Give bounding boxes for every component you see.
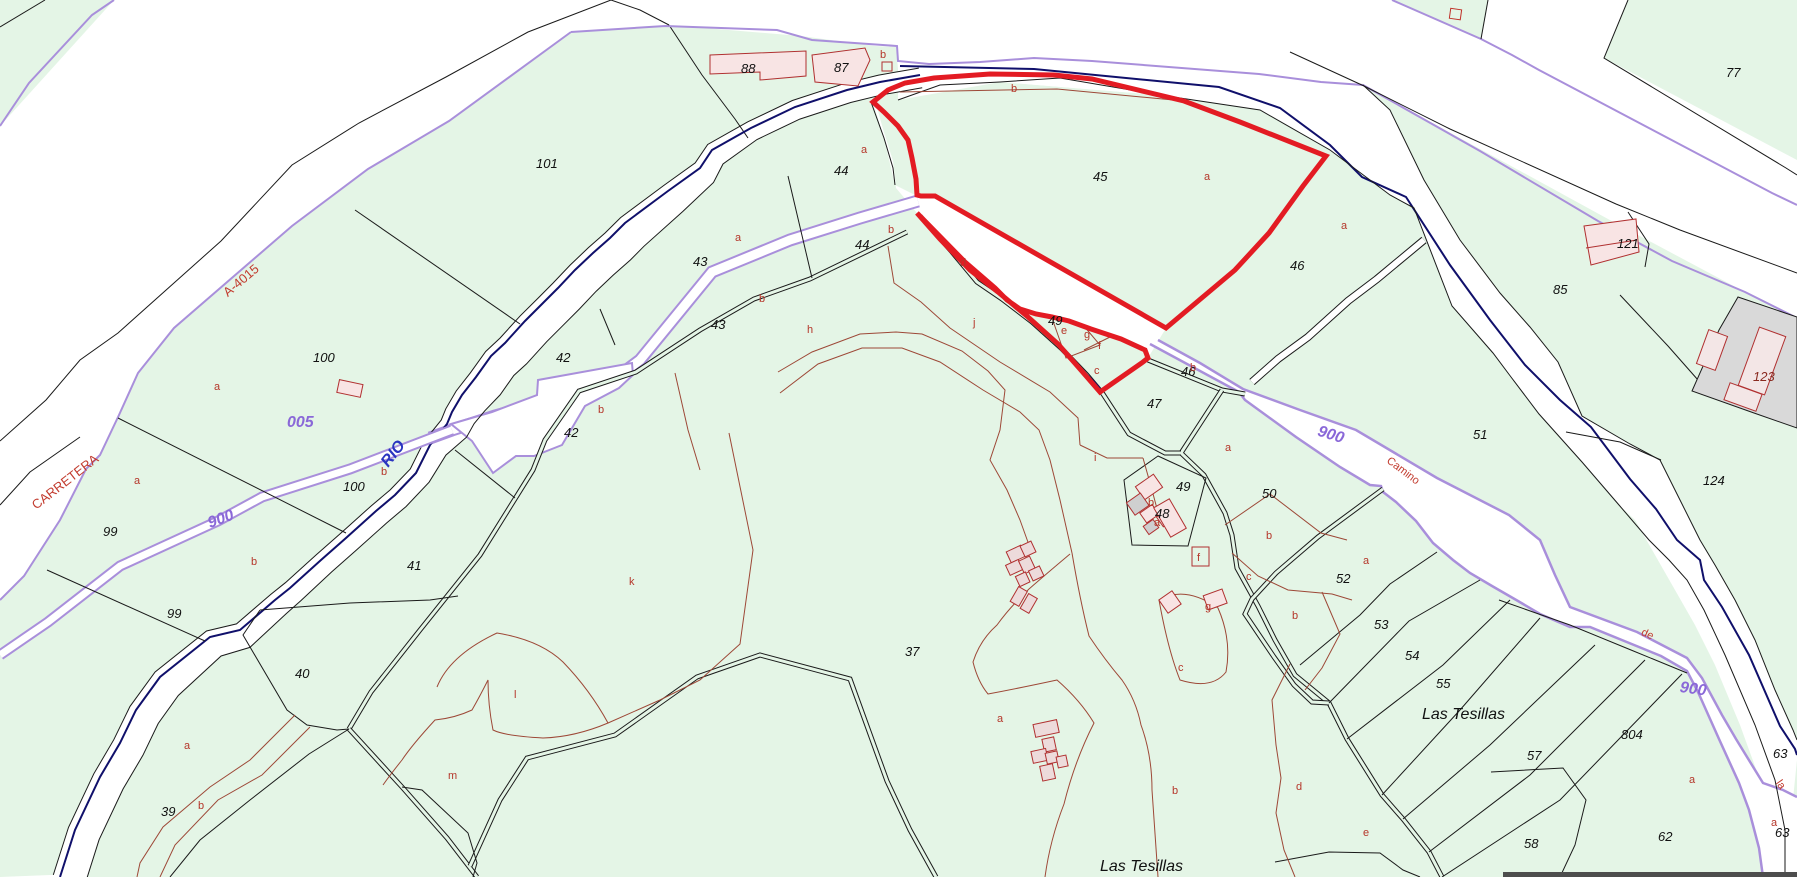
svg-text:124: 124 [1703, 473, 1725, 488]
svg-text:Las Tesillas: Las Tesillas [1100, 858, 1183, 875]
svg-text:37: 37 [905, 644, 920, 659]
svg-text:43: 43 [711, 317, 726, 332]
svg-text:c: c [1094, 365, 1100, 377]
svg-text:b: b [1148, 497, 1154, 509]
svg-text:51: 51 [1473, 427, 1487, 442]
svg-text:41: 41 [407, 558, 421, 573]
svg-text:a: a [1341, 220, 1348, 232]
svg-text:54: 54 [1405, 648, 1419, 663]
svg-text:49: 49 [1176, 479, 1190, 494]
svg-text:a: a [1204, 171, 1211, 183]
svg-text:g: g [1205, 601, 1211, 613]
svg-text:46: 46 [1290, 258, 1305, 273]
svg-text:100: 100 [313, 350, 335, 365]
svg-text:99: 99 [103, 524, 117, 539]
svg-text:39: 39 [161, 804, 175, 819]
svg-text:63: 63 [1773, 746, 1788, 761]
svg-text:a: a [1154, 517, 1161, 529]
svg-text:57: 57 [1527, 748, 1542, 763]
svg-text:a: a [134, 475, 141, 487]
svg-text:g: g [1084, 329, 1090, 341]
svg-text:k: k [629, 576, 635, 588]
svg-text:a: a [861, 144, 868, 156]
svg-text:99: 99 [167, 606, 181, 621]
svg-text:b: b [198, 800, 204, 812]
svg-text:i: i [1094, 452, 1096, 464]
svg-text:h: h [807, 324, 813, 336]
svg-text:121: 121 [1617, 236, 1639, 251]
svg-text:42: 42 [564, 425, 579, 440]
svg-text:b: b [888, 224, 894, 236]
svg-text:b: b [598, 404, 604, 416]
svg-text:b: b [1172, 785, 1178, 797]
svg-text:47: 47 [1147, 396, 1162, 411]
svg-text:43: 43 [693, 254, 708, 269]
svg-text:005: 005 [287, 414, 315, 431]
svg-text:101: 101 [536, 156, 558, 171]
svg-text:a: a [1771, 817, 1778, 829]
svg-text:b: b [880, 49, 886, 61]
svg-text:77: 77 [1726, 65, 1741, 80]
svg-text:a: a [997, 713, 1004, 725]
svg-text:j: j [972, 317, 975, 329]
svg-text:c: c [1178, 662, 1184, 674]
svg-text:63: 63 [1775, 825, 1790, 840]
svg-text:d: d [960, 257, 966, 269]
svg-text:m: m [448, 770, 457, 782]
svg-text:44: 44 [834, 163, 848, 178]
svg-text:55: 55 [1436, 676, 1451, 691]
svg-text:50: 50 [1262, 486, 1277, 501]
svg-text:b: b [381, 466, 387, 478]
svg-text:42: 42 [556, 350, 571, 365]
svg-text:a: a [1689, 774, 1696, 786]
svg-text:100: 100 [343, 479, 365, 494]
svg-text:a: a [735, 232, 742, 244]
svg-text:85: 85 [1553, 282, 1568, 297]
svg-text:87: 87 [834, 60, 849, 75]
svg-text:123: 123 [1753, 369, 1775, 384]
svg-text:e: e [1061, 325, 1067, 337]
svg-text:a: a [1363, 555, 1370, 567]
svg-text:l: l [514, 689, 516, 701]
svg-text:58: 58 [1524, 836, 1539, 851]
svg-text:40: 40 [295, 666, 310, 681]
svg-text:b: b [1190, 362, 1196, 374]
svg-text:Las Tesillas: Las Tesillas [1422, 706, 1505, 723]
svg-text:d: d [1296, 781, 1302, 793]
svg-text:45: 45 [1093, 169, 1108, 184]
svg-text:b: b [759, 293, 765, 305]
svg-text:53: 53 [1374, 617, 1389, 632]
svg-text:b: b [1292, 610, 1298, 622]
svg-text:a: a [214, 381, 221, 393]
svg-text:88: 88 [741, 61, 756, 76]
svg-text:804: 804 [1621, 727, 1643, 742]
svg-text:b: b [251, 556, 257, 568]
svg-text:b: b [1011, 83, 1017, 95]
svg-text:e: e [1363, 827, 1369, 839]
svg-text:b: b [1266, 530, 1272, 542]
svg-text:c: c [1246, 571, 1252, 583]
svg-text:a: a [184, 740, 191, 752]
svg-text:52: 52 [1336, 571, 1351, 586]
svg-text:44: 44 [855, 237, 869, 252]
svg-text:a: a [1225, 442, 1232, 454]
svg-text:62: 62 [1658, 829, 1673, 844]
